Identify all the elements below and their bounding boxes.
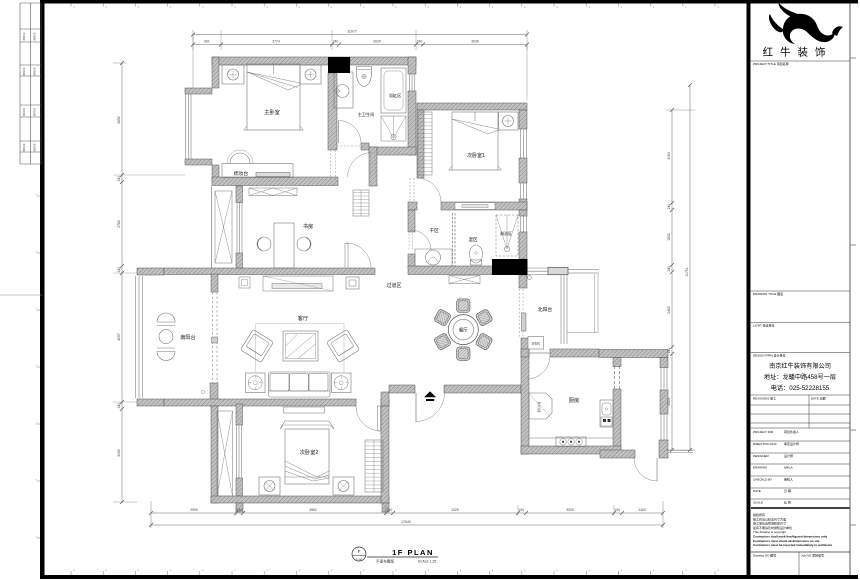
svg-text:240: 240: [615, 508, 621, 512]
svg-text:11751: 11751: [685, 267, 689, 276]
svg-text:平面布置图: 平面布置图: [376, 559, 394, 564]
svg-text:3324: 3324: [667, 398, 671, 406]
svg-text:4257: 4257: [117, 333, 121, 341]
svg-text:240: 240: [117, 267, 121, 273]
svg-text:CHECKLD BY: CHECKLD BY: [753, 478, 772, 482]
svg-text:240: 240: [117, 403, 121, 409]
svg-text:3063: 3063: [667, 152, 671, 160]
svg-text:餐厅: 餐厅: [459, 327, 468, 334]
svg-text:1852: 1852: [667, 233, 671, 241]
svg-text:版权所有: 版权所有: [753, 512, 765, 517]
svg-text:厨房: 厨房: [569, 396, 579, 404]
svg-text:浴缸区: 浴缸区: [389, 92, 402, 99]
svg-text:过道区: 过道区: [386, 282, 401, 289]
svg-text:主卫生间: 主卫生间: [358, 111, 375, 118]
svg-text:客厅: 客厅: [298, 314, 308, 322]
svg-text:3065: 3065: [117, 449, 121, 457]
svg-text:湿区: 湿区: [468, 236, 478, 243]
svg-text:比 例: 比 例: [784, 500, 791, 505]
svg-text:F: F: [358, 549, 361, 554]
svg-text:LIGHT 建设单位: LIGHT 建设单位: [753, 323, 775, 328]
svg-text:3536: 3536: [471, 40, 479, 44]
svg-text:审定设计师: 审定设计师: [784, 441, 799, 446]
svg-text:240: 240: [333, 40, 339, 44]
svg-text:2462: 2462: [667, 306, 671, 314]
svg-text:3774: 3774: [272, 40, 280, 44]
svg-text:17540: 17540: [401, 520, 411, 524]
svg-text:3692: 3692: [117, 116, 121, 124]
svg-text:A-00: A-00: [356, 558, 363, 562]
svg-text:961: 961: [204, 40, 210, 44]
svg-text:橱柜冰箱: 橱柜冰箱: [537, 401, 541, 412]
svg-text:11077: 11077: [347, 30, 357, 34]
svg-text:1360: 1360: [638, 508, 646, 512]
svg-text:240: 240: [117, 176, 121, 182]
svg-text:2629: 2629: [373, 40, 381, 44]
svg-text:主卧室: 主卧室: [264, 108, 280, 116]
svg-text:240: 240: [667, 204, 671, 210]
svg-text:次卧室1: 次卧室1: [467, 152, 485, 159]
svg-text:北阳台: 北阳台: [538, 306, 553, 313]
svg-text:干区: 干区: [429, 228, 439, 234]
svg-text:3025: 3025: [566, 508, 574, 512]
svg-text:2782: 2782: [117, 220, 121, 228]
svg-text:施工时请以标注尺寸为准: 施工时请以标注尺寸为准: [753, 516, 786, 521]
svg-text:Contractors must be reported i: Contractors must be reported immediately…: [753, 543, 833, 547]
svg-text:240: 240: [519, 508, 525, 512]
svg-text:DESIGN FIRM 设计单位: DESIGN FIRM 设计单位: [753, 353, 786, 358]
svg-text:Drawing NO 图号: Drawing NO 图号: [753, 553, 776, 558]
svg-text:施工单位请现场核定尺寸: 施工单位请现场核定尺寸: [753, 521, 786, 526]
svg-text:SCALE 1:25: SCALE 1:25: [418, 560, 437, 564]
svg-text:项目负责人: 项目负责人: [784, 429, 799, 434]
svg-text:2900: 2900: [190, 508, 198, 512]
svg-text:设计师: 设计师: [784, 453, 793, 458]
svg-text:DESIGNER: DESIGNER: [753, 454, 770, 458]
svg-text:DRAWING TITLE 图名: DRAWING TITLE 图名: [753, 291, 783, 296]
svg-text:240: 240: [237, 508, 243, 512]
svg-text:240: 240: [667, 348, 671, 354]
svg-text:1025: 1025: [451, 508, 459, 512]
svg-text:如有不明请及时通知设计单位: 如有不明请及时通知设计单位: [753, 525, 792, 530]
svg-text:DIRECTION DUX: DIRECTION DUX: [753, 442, 777, 446]
svg-text:240: 240: [417, 40, 423, 44]
svg-text:SCALE: SCALE: [753, 501, 763, 505]
svg-text:Job NO 项目编号: Job NO 项目编号: [801, 553, 824, 558]
svg-text:日 期: 日 期: [784, 488, 791, 493]
svg-text:淋浴区: 淋浴区: [500, 230, 512, 236]
svg-text:书房: 书房: [303, 222, 313, 230]
svg-text:4962: 4962: [309, 508, 317, 512]
svg-text:DRAWING: DRAWING: [753, 466, 768, 470]
svg-text:1F PLAN: 1F PLAN: [392, 548, 434, 557]
svg-text:南阳台: 南阳台: [180, 333, 196, 341]
svg-text:PROJECT TITLE 项目名称: PROJECT TITLE 项目名称: [753, 61, 789, 66]
svg-text:南京红牛装饰有限公司: 南京红牛装饰有限公司: [769, 362, 831, 370]
svg-text:电话：025-52228155: 电话：025-52228155: [771, 384, 830, 392]
svg-text:REVISIONS 施工: REVISIONS 施工: [753, 396, 776, 401]
svg-text:DATE 日期: DATE 日期: [811, 396, 826, 401]
svg-text:PROJECT DIR: PROJECT DIR: [753, 430, 774, 434]
svg-text:NBILA: NBILA: [784, 466, 793, 470]
svg-text:次卧室2: 次卧室2: [300, 448, 319, 456]
svg-text:洗衣机: 洗衣机: [531, 340, 540, 345]
svg-text:审核人: 审核人: [784, 477, 793, 482]
svg-text:240: 240: [667, 266, 671, 272]
svg-text:红 牛 装 饰: 红 牛 装 饰: [763, 46, 828, 59]
svg-text:地址：龙蟠中路458号一层: 地址：龙蟠中路458号一层: [764, 373, 836, 381]
svg-text:DATE: DATE: [753, 489, 761, 493]
svg-text:240: 240: [387, 508, 393, 512]
svg-text:梳妆台: 梳妆台: [234, 170, 249, 177]
